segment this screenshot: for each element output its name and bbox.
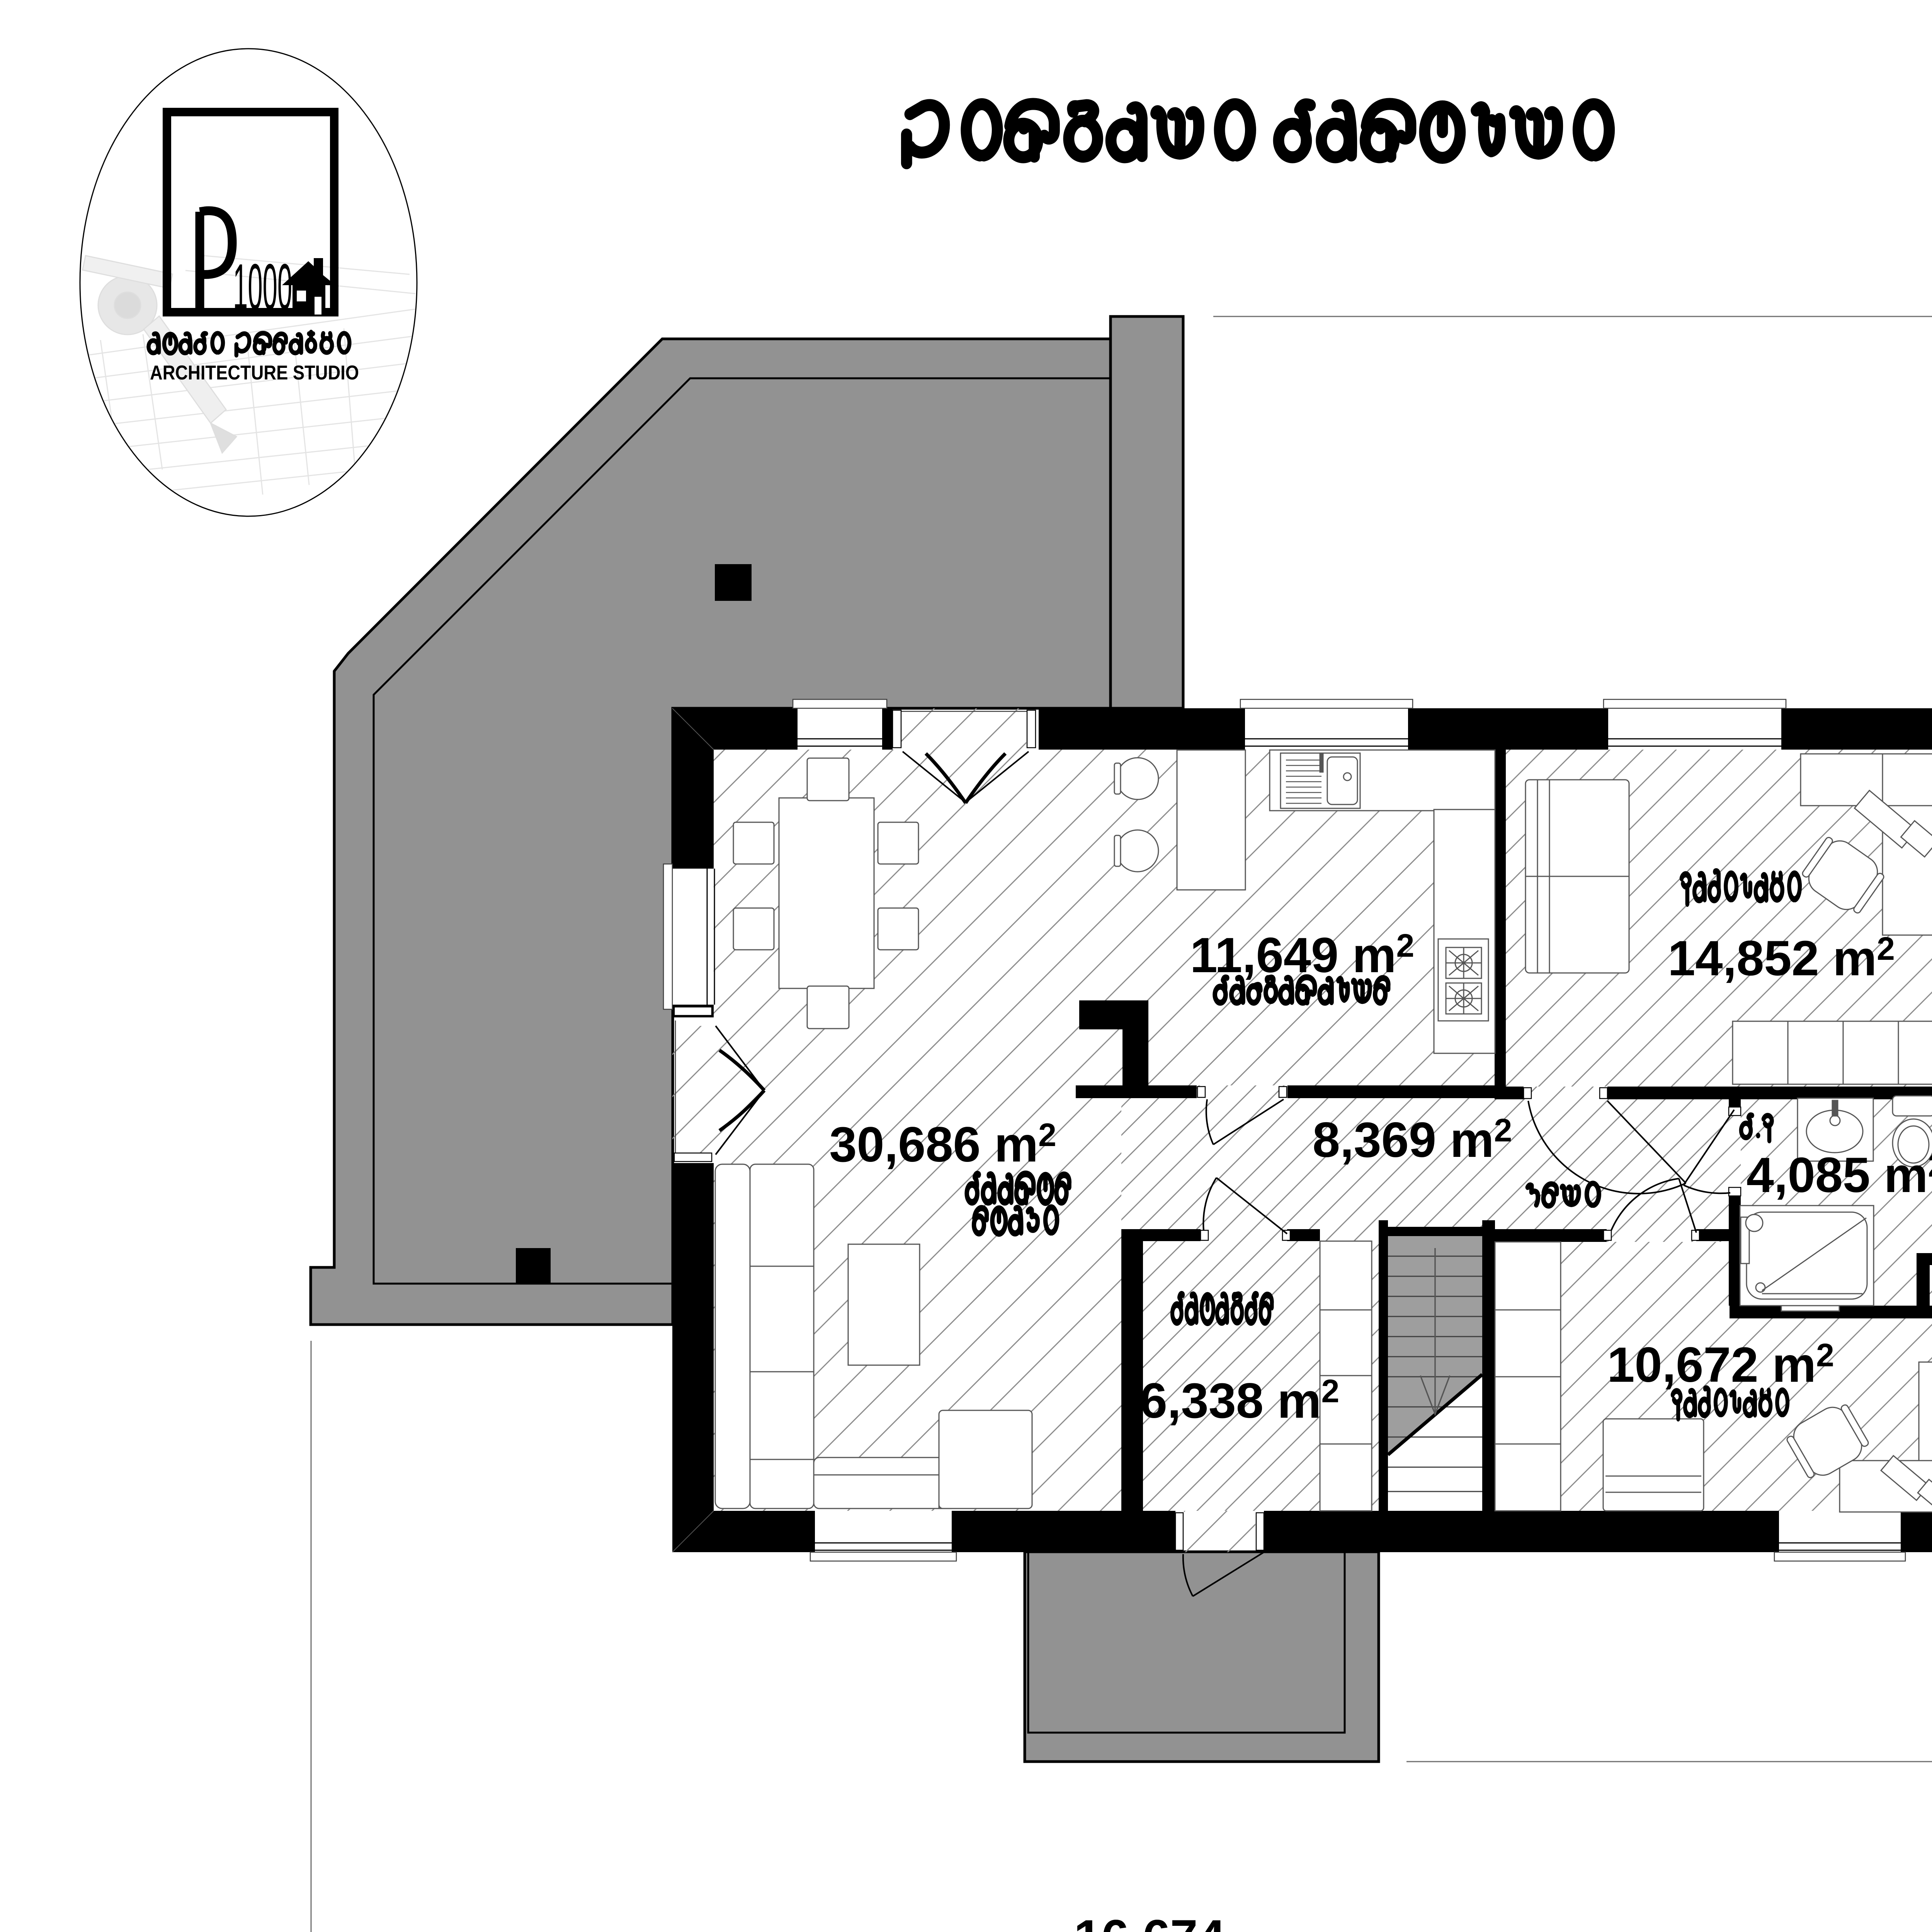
svg-text:ARCHITECTURE STUDIO: ARCHITECTURE STUDIO (150, 362, 359, 384)
svg-text:8,369 m2: 8,369 m2 (1313, 1112, 1512, 1168)
svg-text:16,674: 16,674 (1074, 1910, 1225, 1932)
svg-text:11,649 m2: 11,649 m2 (1190, 927, 1415, 983)
svg-text:14,852 m2: 14,852 m2 (1668, 930, 1895, 986)
svg-text:4,085 m2: 4,085 m2 (1747, 1147, 1932, 1203)
svg-text:30,686 m2: 30,686 m2 (829, 1117, 1056, 1172)
svg-text:1000: 1000 (233, 251, 292, 323)
svg-text:6,338 m2: 6,338 m2 (1140, 1373, 1339, 1429)
svg-text:10,672 m2: 10,672 m2 (1607, 1337, 1834, 1393)
